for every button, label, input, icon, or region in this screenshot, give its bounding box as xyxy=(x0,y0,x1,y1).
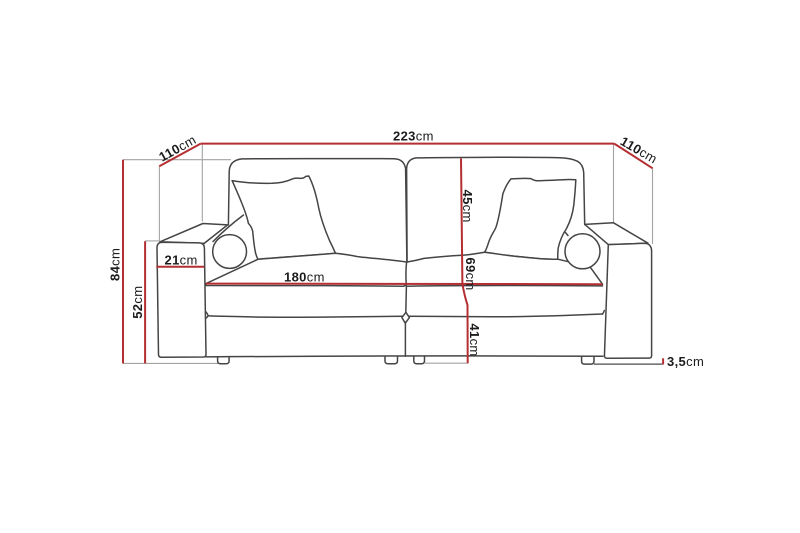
svg-text:52cm: 52cm xyxy=(130,286,145,319)
svg-text:21cm: 21cm xyxy=(165,252,198,267)
svg-text:84cm: 84cm xyxy=(108,248,123,281)
svg-text:45cm: 45cm xyxy=(460,189,475,222)
svg-text:41cm: 41cm xyxy=(467,323,482,356)
svg-text:223cm: 223cm xyxy=(393,128,434,143)
svg-text:3,5cm: 3,5cm xyxy=(667,354,704,369)
svg-text:180cm: 180cm xyxy=(284,270,325,285)
svg-text:69cm: 69cm xyxy=(463,257,478,290)
